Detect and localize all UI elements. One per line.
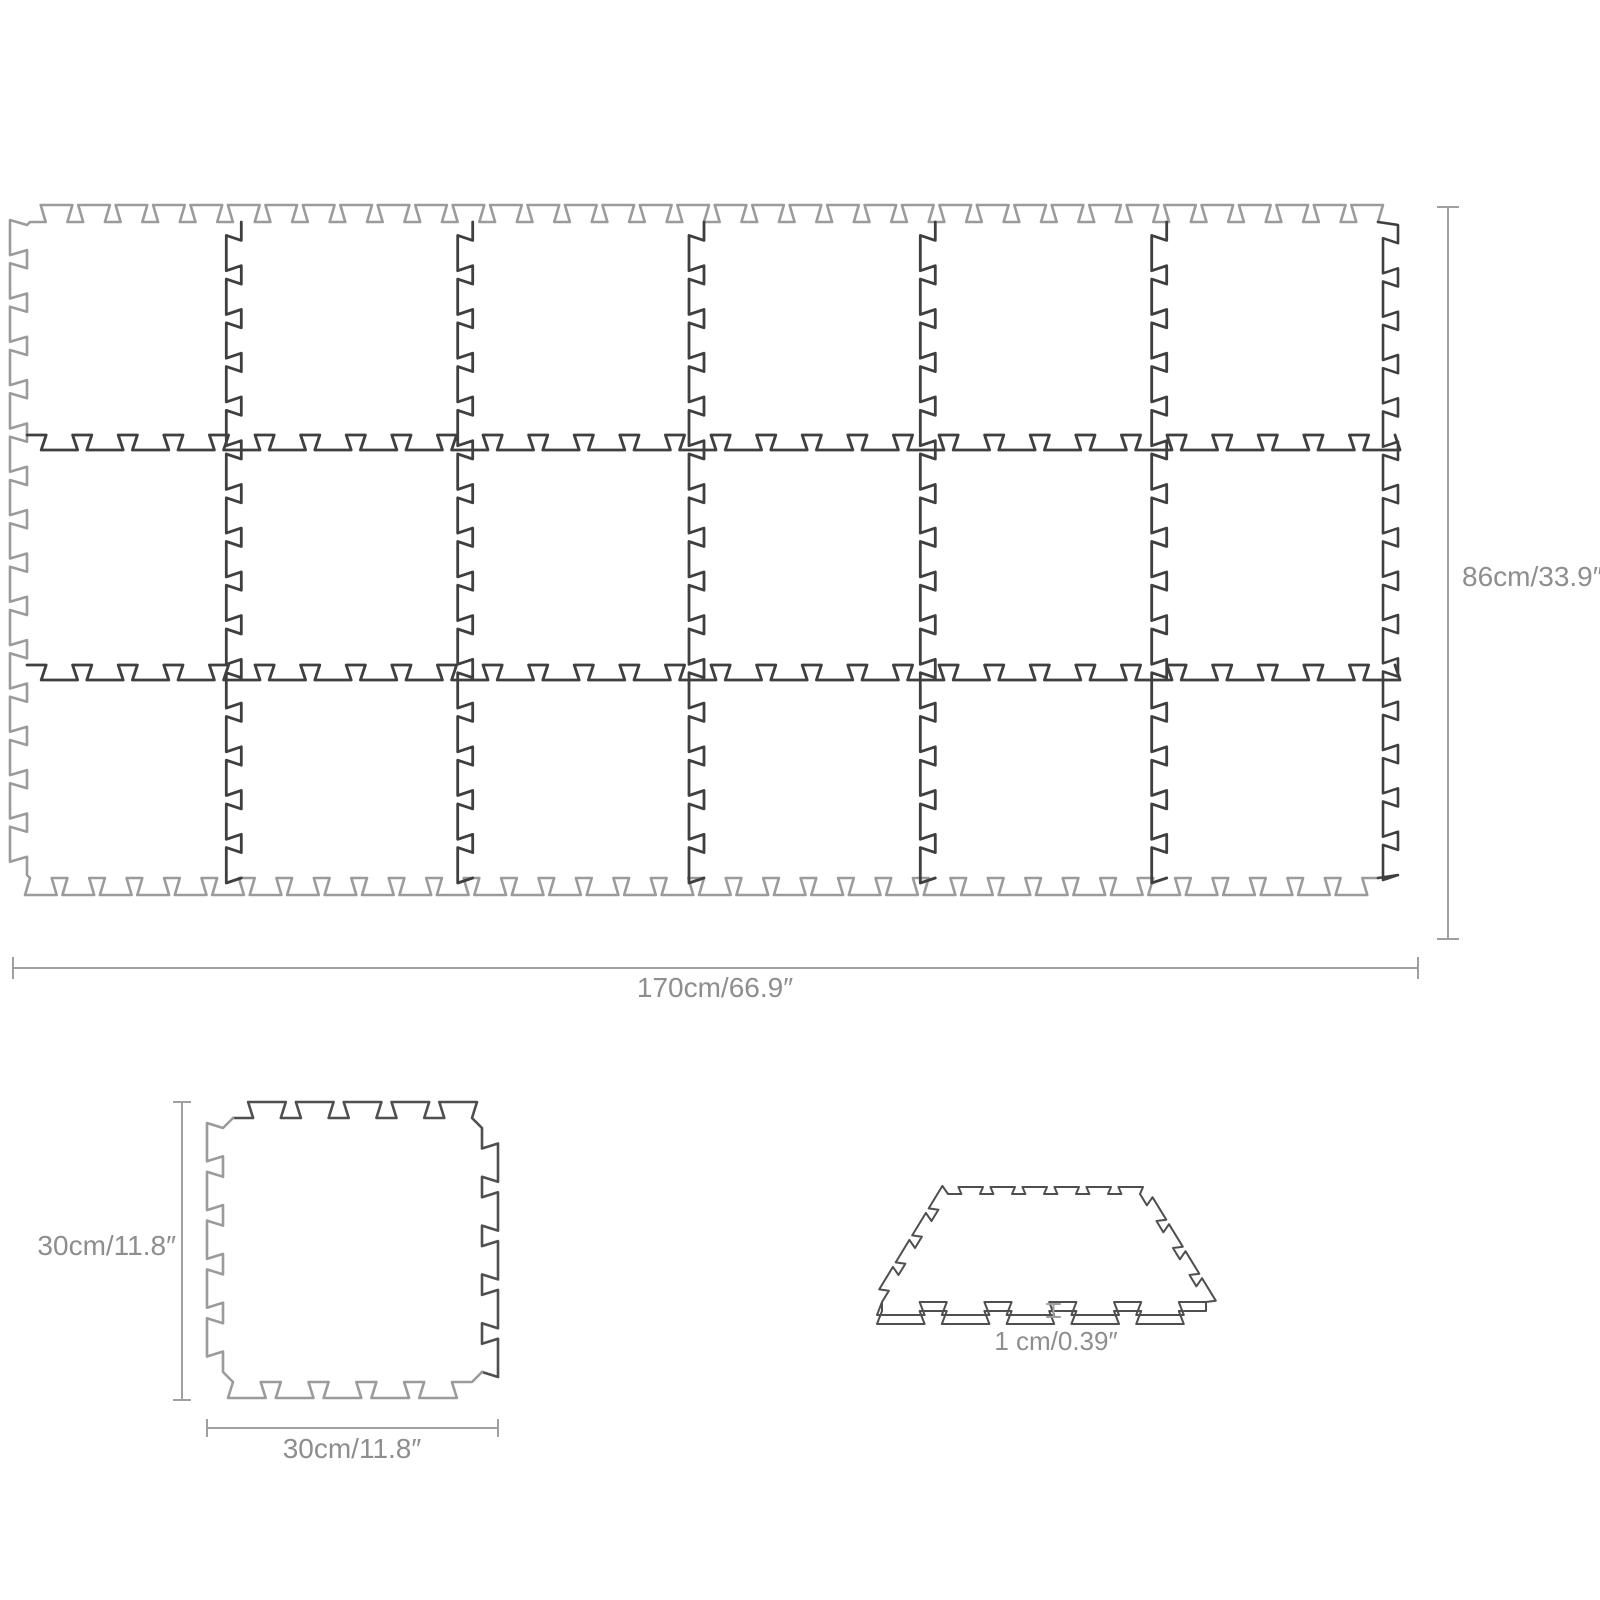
tile-width-label: 30cm/11.8″ bbox=[283, 1433, 422, 1464]
single-tile-outline-bottom-left bbox=[207, 1118, 482, 1398]
single-tile-outline-top-right bbox=[233, 1102, 498, 1377]
mat-grid-right-edge bbox=[1378, 222, 1398, 880]
perspective-tile-thickness-edge bbox=[877, 1302, 1206, 1324]
mat-width-label: 170cm/66.9″ bbox=[637, 972, 793, 1003]
mat-grid-dimensions: 86cm/33.9″ 170cm/66.9″ bbox=[13, 207, 1600, 1003]
tile-thickness-label: 1 cm/0.39″ bbox=[994, 1326, 1117, 1356]
single-tile-diagram bbox=[207, 1102, 498, 1398]
mat-grid-diagram bbox=[10, 205, 1400, 895]
mat-height-label: 86cm/33.9″ bbox=[1462, 561, 1600, 592]
mat-height-dimension-line bbox=[1437, 207, 1459, 939]
tile-thickness-diagram: 1 cm/0.39″ bbox=[877, 1186, 1216, 1356]
tile-height-label: 30cm/11.8″ bbox=[37, 1230, 176, 1261]
single-tile-dimensions: 30cm/11.8″ 30cm/11.8″ bbox=[37, 1102, 498, 1464]
mat-grid-outline bbox=[10, 205, 1383, 895]
mat-grid-interlocking-seams bbox=[27, 222, 1400, 883]
perspective-tile-outline bbox=[877, 1186, 1216, 1315]
foam-mat-dimension-diagram: 86cm/33.9″ 170cm/66.9″ 30cm/11.8″ 30cm/1… bbox=[0, 0, 1600, 1600]
